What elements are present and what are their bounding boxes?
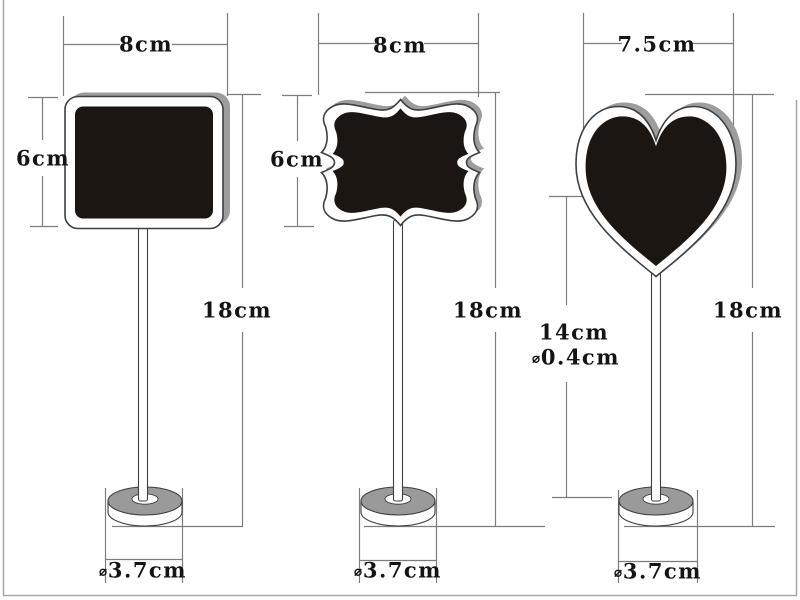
diagram-drawing — [0, 0, 800, 600]
rect-total-height-label: 18cm — [202, 300, 272, 321]
heart-stick-length-label: 14cm — [539, 322, 609, 343]
heart-sign-stem — [652, 262, 661, 501]
heart-stick-diameter-label: ⌀0.4cm — [532, 347, 620, 368]
heart-width-label: 7.5cm — [617, 34, 696, 55]
heart-total-height-label: 18cm — [713, 300, 783, 321]
rect-height-label: 6cm — [16, 148, 70, 169]
ornate-width-label: 8cm — [373, 35, 427, 56]
ornate-base-diameter-label: ⌀3.7cm — [354, 560, 442, 581]
ornate-sign-stem — [394, 220, 403, 501]
ornate-total-height-label: 18cm — [453, 300, 523, 321]
heart-base-diameter-label: ⌀3.7cm — [614, 561, 702, 582]
diameter-symbol: ⌀ — [614, 566, 622, 581]
ornate-height-label: 6cm — [270, 149, 324, 170]
rect-sign-stem — [139, 226, 148, 501]
rect-base-diameter-label: ⌀3.7cm — [99, 560, 187, 581]
ornate-board-surface — [333, 108, 469, 216]
diameter-symbol: ⌀ — [99, 565, 107, 580]
diameter-symbol: ⌀ — [532, 352, 540, 367]
diameter-symbol: ⌀ — [354, 565, 362, 580]
chalkboard-size-diagram: 8cm 6cm 18cm ⌀3.7cm 8cm 6cm 18cm ⌀3.7cm … — [0, 0, 800, 600]
rect-width-label: 8cm — [119, 34, 173, 55]
rect-board-surface — [75, 107, 213, 219]
